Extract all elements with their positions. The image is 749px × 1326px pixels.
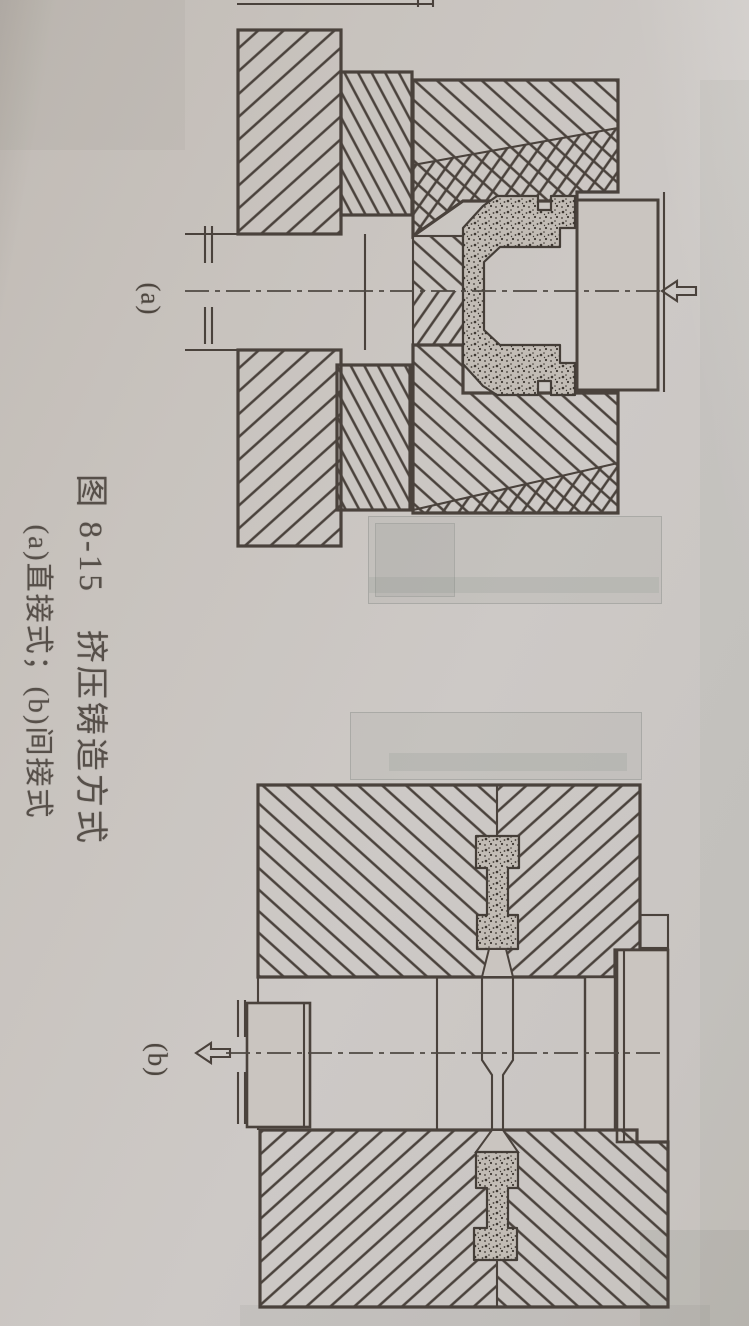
upper-die-b xyxy=(258,785,668,977)
pressure-arrow-icon-a xyxy=(662,281,696,301)
guide-column-right xyxy=(617,950,668,1142)
die-block-upper-middle xyxy=(341,72,412,215)
ram-tick-marks-a xyxy=(205,226,212,344)
label-subfigure-a: (a) xyxy=(135,283,166,316)
die-block-upper-left xyxy=(238,30,341,234)
diagram-indirect-squeeze-casting xyxy=(180,700,740,1326)
punch-block xyxy=(577,192,664,392)
casting-section-a xyxy=(463,196,575,395)
scanned-textbook-page: 图 8-15 挤压铸造方式 (a)直接式；(b)间接式 (a) (b) xyxy=(0,0,749,1326)
pressure-arrow-icon-b xyxy=(196,1043,230,1063)
die-block-lower-left xyxy=(238,350,341,546)
bleed-through-top-left xyxy=(0,0,185,150)
ram-tick-marks-b xyxy=(238,1000,245,1124)
label-subfigure-b: (b) xyxy=(142,1043,173,1077)
lower-die-b xyxy=(260,1130,668,1307)
injection-plunger-head xyxy=(247,1003,310,1127)
figure-caption-subtitle: (a)直接式；(b)间接式 xyxy=(20,524,62,819)
diagram-a-cropped-top-edge xyxy=(237,0,433,7)
diagram-direct-squeeze-casting xyxy=(180,0,720,600)
die-block-lower-middle xyxy=(337,365,410,510)
figure-caption-title: 图 8-15 挤压铸造方式 xyxy=(70,474,118,846)
